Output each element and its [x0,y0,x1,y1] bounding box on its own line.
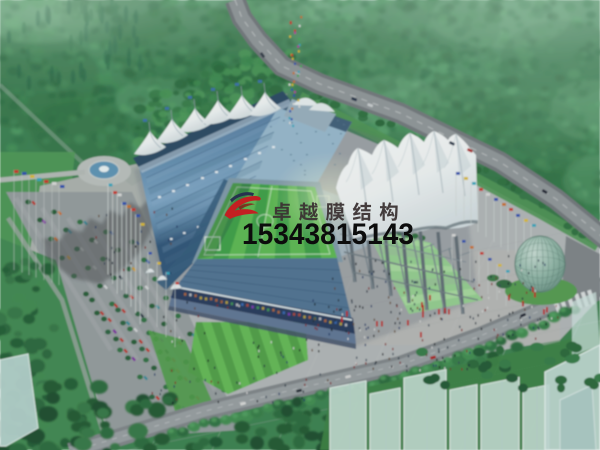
svg-text:15343815143: 15343815143 [242,218,414,251]
